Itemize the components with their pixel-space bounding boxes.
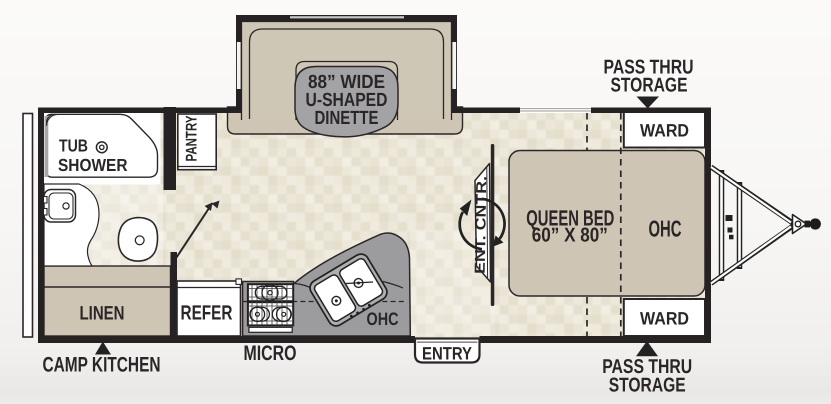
- svg-text:PANTRY: PANTRY: [184, 115, 201, 161]
- svg-text:OHC: OHC: [367, 309, 399, 329]
- svg-text:MICRO: MICRO: [244, 342, 297, 365]
- svg-text:CAMP KITCHEN: CAMP KITCHEN: [43, 354, 161, 377]
- svg-text:DINETTE: DINETTE: [315, 108, 379, 129]
- svg-text:STORAGE: STORAGE: [611, 74, 688, 96]
- svg-text:OHC: OHC: [649, 216, 682, 242]
- svg-text:60” X 80”: 60” X 80”: [532, 224, 608, 246]
- svg-text:ENTRY: ENTRY: [422, 344, 472, 364]
- svg-text:REFER: REFER: [181, 301, 233, 324]
- svg-text:WARD: WARD: [640, 309, 689, 329]
- svg-text:SHOWER: SHOWER: [58, 155, 128, 175]
- svg-text:LINEN: LINEN: [80, 303, 125, 325]
- svg-text:ENT. CNTR.: ENT. CNTR.: [473, 176, 491, 274]
- svg-text:TUB: TUB: [59, 136, 88, 156]
- svg-text:STORAGE: STORAGE: [609, 374, 686, 396]
- svg-text:WARD: WARD: [640, 121, 689, 141]
